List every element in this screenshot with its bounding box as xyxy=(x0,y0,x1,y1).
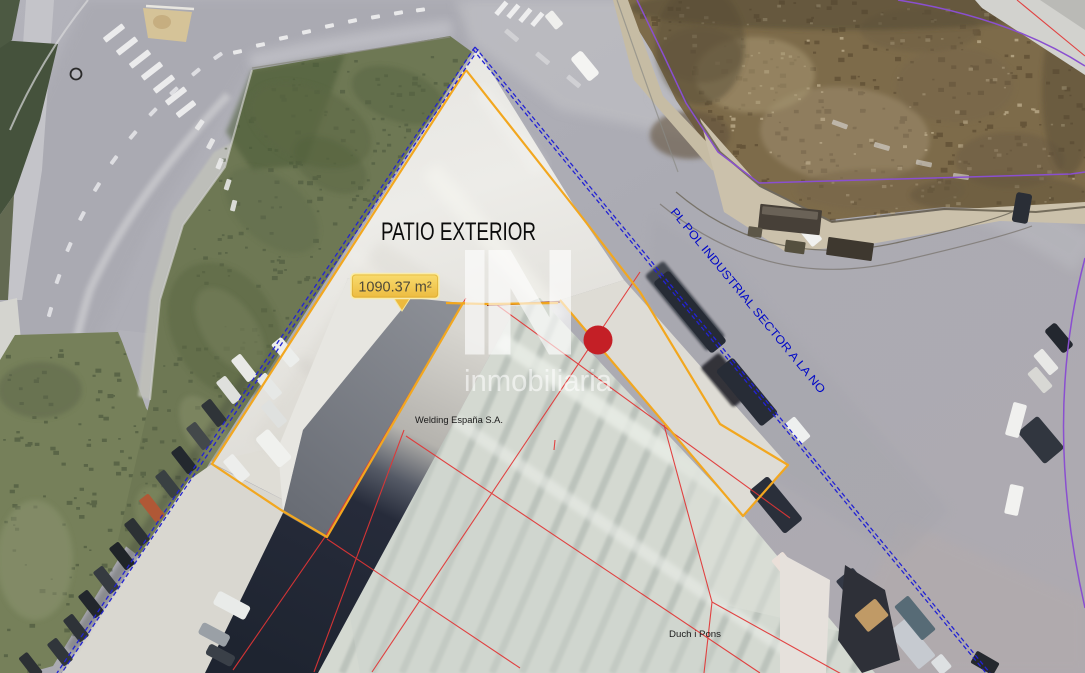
svg-text:1090.37 m²: 1090.37 m² xyxy=(358,280,432,296)
svg-text:PATIO EXTERIOR: PATIO EXTERIOR xyxy=(381,218,536,246)
svg-text:Duch i Pons: Duch i Pons xyxy=(669,629,721,640)
svg-text:inmobiliaria: inmobiliaria xyxy=(464,363,613,398)
svg-text:Welding España S.A.: Welding España S.A. xyxy=(415,415,503,426)
